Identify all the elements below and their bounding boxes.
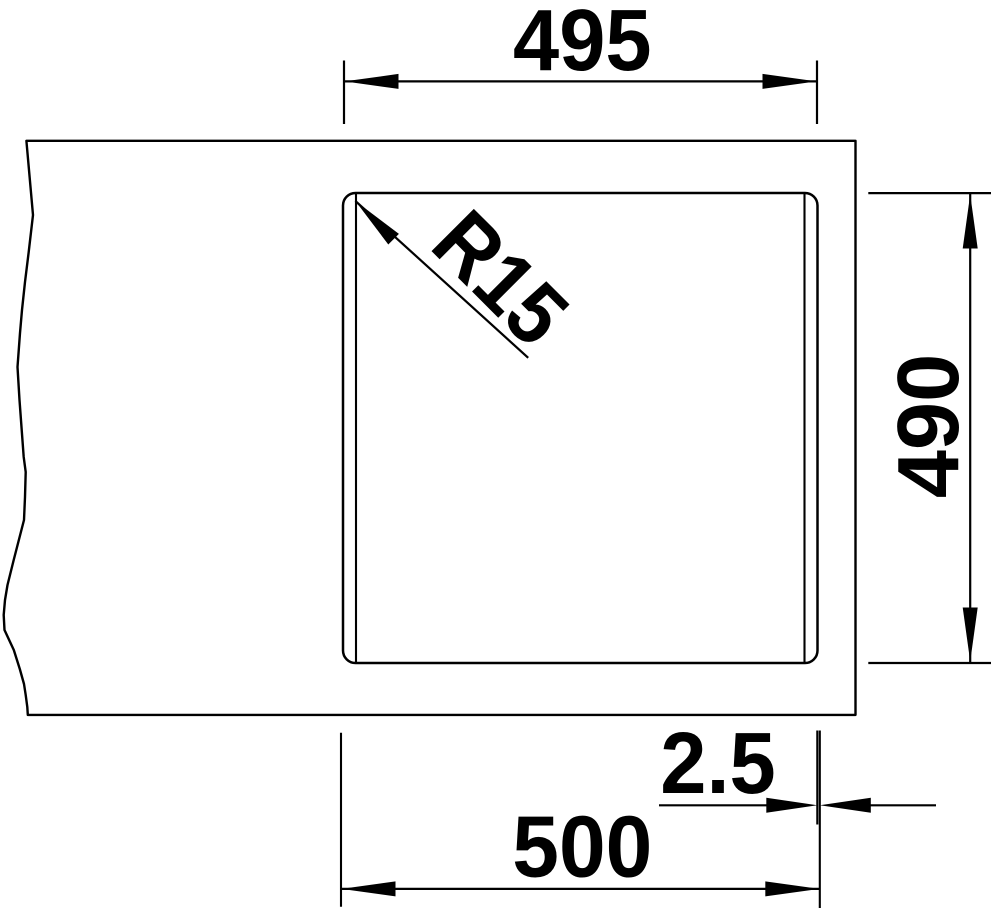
svg-text:490: 490 (880, 354, 977, 499)
svg-text:2.5: 2.5 (660, 715, 776, 812)
svg-text:500: 500 (512, 799, 652, 896)
svg-text:495: 495 (513, 0, 652, 89)
